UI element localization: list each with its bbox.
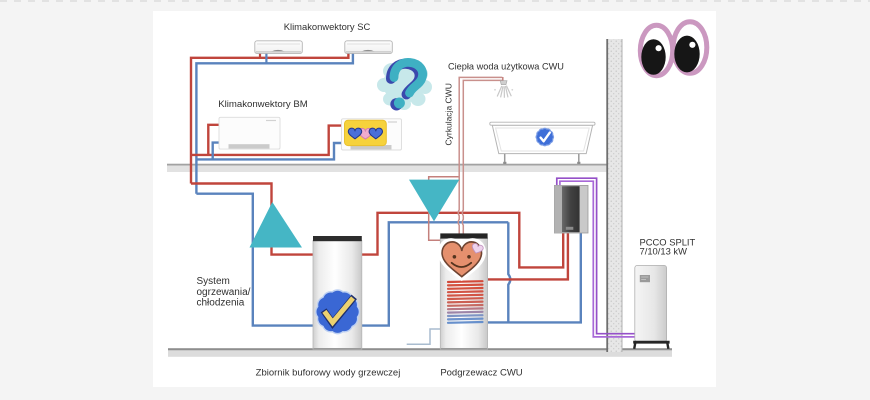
svg-text:Podgrzewacz CWU: Podgrzewacz CWU <box>440 367 522 378</box>
svg-text:Klimakonwektory SC: Klimakonwektory SC <box>284 21 371 32</box>
svg-text:Cyrkulacja CWU: Cyrkulacja CWU <box>444 83 454 145</box>
svg-text:Zbiornik buforowy wody grzewcz: Zbiornik buforowy wody grzewczej <box>256 367 401 378</box>
svg-text:chłodzenia: chłodzenia <box>197 297 245 308</box>
svg-text:Klimakonwektory BM: Klimakonwektory BM <box>218 99 308 110</box>
svg-text:Ciepła woda użytkowa CWU: Ciepła woda użytkowa CWU <box>448 62 564 72</box>
svg-text:System: System <box>197 276 230 287</box>
svg-text:ogrzewania/: ogrzewania/ <box>197 287 251 298</box>
svg-text:7/10/13 kW: 7/10/13 kW <box>640 246 688 257</box>
